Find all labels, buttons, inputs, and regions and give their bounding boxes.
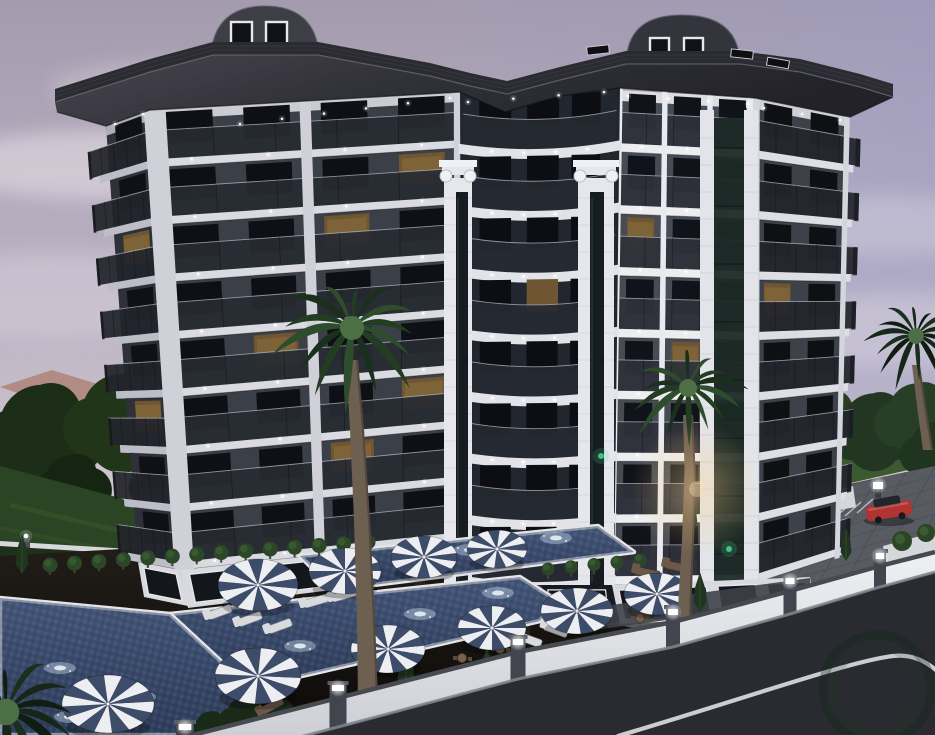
striped-umbrella [215, 648, 301, 710]
striped-umbrella [62, 675, 154, 735]
striped-umbrella [541, 588, 613, 639]
striped-umbrella [391, 536, 457, 582]
striped-umbrella [218, 559, 298, 616]
striped-umbrella [467, 530, 527, 572]
apartment-complex-3d-rendering [0, 0, 935, 735]
rendering-viewport [0, 0, 935, 735]
